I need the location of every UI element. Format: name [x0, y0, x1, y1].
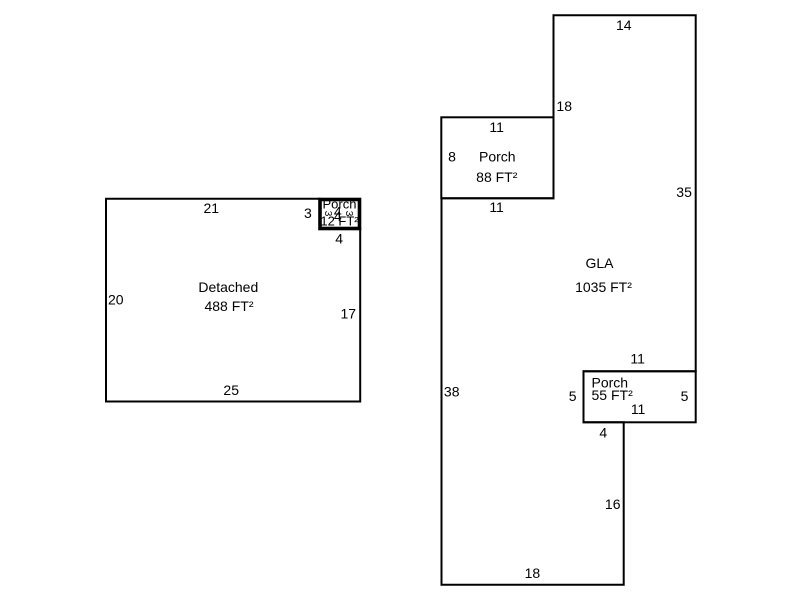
svg-text:3: 3 [304, 205, 312, 221]
svg-text:4: 4 [335, 230, 343, 246]
svg-text:Detached: Detached [198, 279, 258, 295]
svg-text:Porch: Porch [479, 149, 516, 165]
svg-text:4: 4 [599, 425, 607, 441]
svg-text:5: 5 [569, 388, 577, 404]
svg-text:16: 16 [605, 496, 621, 512]
svg-text:18: 18 [556, 98, 572, 114]
svg-text:18: 18 [525, 565, 541, 581]
svg-text:1035 FT²: 1035 FT² [575, 279, 632, 295]
svg-text:11: 11 [630, 351, 645, 367]
svg-text:20: 20 [108, 291, 124, 307]
svg-text:11: 11 [489, 199, 504, 215]
svg-text:3: 3 [343, 211, 354, 217]
svg-text:17: 17 [341, 306, 357, 322]
svg-text:8: 8 [448, 149, 456, 165]
svg-text:14: 14 [616, 17, 632, 33]
svg-text:GLA: GLA [585, 255, 614, 271]
svg-text:35: 35 [676, 184, 692, 200]
svg-text:4: 4 [334, 208, 342, 224]
svg-text:38: 38 [444, 383, 460, 399]
svg-text:11: 11 [631, 401, 646, 417]
svg-text:21: 21 [204, 200, 220, 216]
svg-text:11: 11 [489, 119, 504, 135]
svg-text:5: 5 [681, 388, 689, 404]
svg-text:3: 3 [322, 211, 333, 217]
svg-text:488 FT²: 488 FT² [204, 298, 253, 314]
svg-text:55 FT²: 55 FT² [592, 387, 634, 403]
svg-text:25: 25 [223, 382, 239, 398]
svg-text:88 FT²: 88 FT² [476, 169, 518, 185]
